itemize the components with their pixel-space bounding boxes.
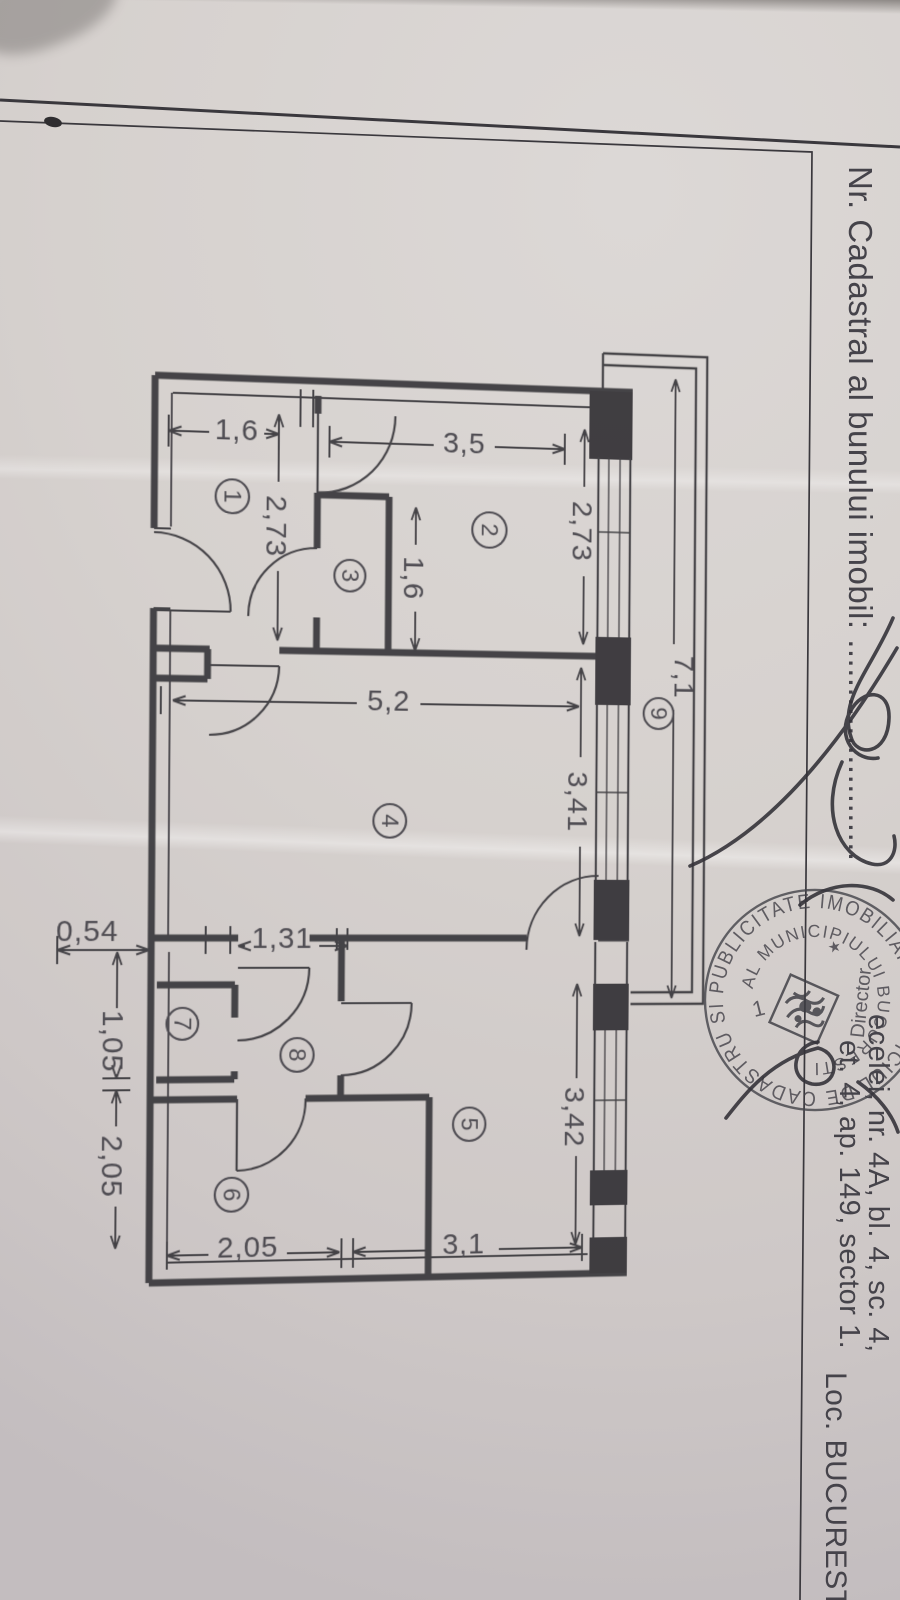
stamp-number: 1 xyxy=(750,995,768,1022)
frame-top-edge-line xyxy=(0,100,900,147)
frame-border-line xyxy=(0,121,812,1600)
photographed-document: 1,63,52,731,62,735,23,417,10,541,311,052… xyxy=(0,0,900,1600)
ink-blob xyxy=(43,115,63,129)
notary-stamp: SI PUBLICITATE IMOBILIARA ★ OFICIUL DE C… xyxy=(681,867,900,1134)
page-frame xyxy=(0,100,900,1600)
document-overlay: Nr. Cadastral al bunului imobil: .......… xyxy=(0,0,900,1600)
locality-text: Loc. BUCURESTI. xyxy=(819,1372,852,1600)
